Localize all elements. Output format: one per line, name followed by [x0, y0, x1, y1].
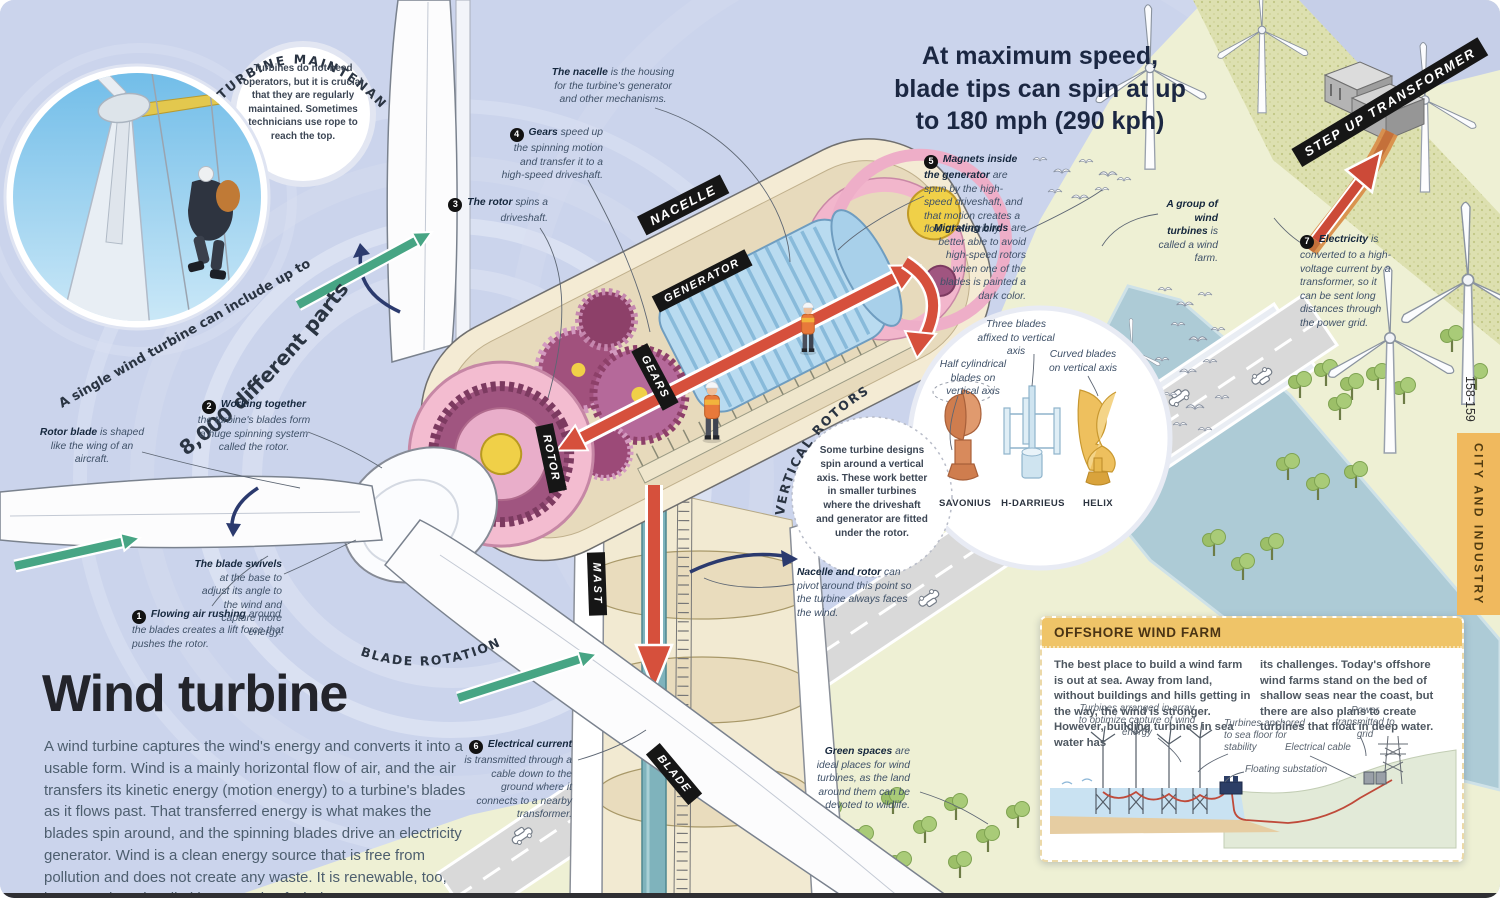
callout-2-working-together: 2 Working together the turbine's blades … — [196, 398, 312, 455]
page-title: Wind turbine — [42, 664, 347, 724]
annotation-blade-swivels: The blade swivels at the base to adjust … — [190, 558, 282, 639]
offshore-label-cable: Electrical cable — [1285, 742, 1365, 754]
callout-5-badge: 5 — [924, 155, 938, 169]
name-savonius: SAVONIUS — [930, 498, 1000, 509]
callout-7-electricity: 7 Electricity is converted to a high-vol… — [1300, 233, 1394, 330]
vertical-rotors-bubble-text: Some turbine designs spin around a verti… — [814, 444, 930, 541]
annotation-rotor-blade: Rotor blade is shaped like the wing of a… — [36, 426, 148, 467]
callout-6-badge: 6 — [469, 740, 483, 754]
callout-1-badge: 1 — [132, 610, 146, 624]
callout-3-badge: 3 — [448, 198, 462, 212]
callout-7-badge: 7 — [1300, 235, 1314, 249]
label-mast: MAST — [587, 552, 607, 616]
annotation-pivot: Nacelle and rotor can pivot around this … — [797, 566, 915, 620]
offshore-label-power: Power transmitted to grid — [1333, 705, 1397, 742]
offshore-label-substation: Floating substation — [1245, 764, 1335, 776]
maintenance-bubble-text: Turbines do not need operators, but it i… — [243, 62, 363, 143]
caption-helix: Curved blades on vertical axis — [1044, 348, 1122, 375]
blade-up — [387, 0, 457, 362]
callout-6-electrical-current: 6 Electrical current is transmitted thro… — [460, 738, 572, 822]
annotation-wind-farm: A group of wind turbines is called a win… — [1156, 198, 1218, 266]
section-tab-city-and-industry: CITY AND INDUSTRY — [1457, 433, 1500, 615]
max-speed-stat: At maximum speed, blade tips can spin at… — [888, 40, 1192, 138]
annotation-green-spaces: Green spaces are ideal places for wind t… — [815, 745, 910, 813]
name-helix: HELIX — [1073, 498, 1123, 509]
caption-savonius: Half cylindrical blades on vertical axis — [936, 358, 1010, 399]
background-tower — [456, 0, 470, 358]
callout-3-rotor: 3 The rotor spins a driveshaft. — [448, 196, 548, 226]
callout-4-gears: 4 Gears speed up the spinning motion and… — [495, 126, 603, 183]
offshore-heading: OFFSHORE WIND FARM — [1042, 618, 1462, 648]
annotation-migrating-birds: Migrating birds are better able to avoid… — [930, 222, 1026, 303]
book-page-wind-turbine: TURBINE MAINTENANCE A single wind turbin… — [0, 0, 1500, 898]
offshore-wind-farm-panel: OFFSHORE WIND FARM The best place to bui… — [1040, 616, 1464, 862]
page-numbers: 158-159 — [1463, 376, 1477, 422]
offshore-label-arranged: Turbines arranged in array to optimize c… — [1077, 703, 1197, 740]
name-h-darrieus: H-DARRIEUS — [997, 498, 1069, 509]
callout-4-badge: 4 — [510, 128, 524, 142]
callout-2-badge: 2 — [202, 400, 216, 414]
annotation-nacelle-housing: The nacelle is the housing for the turbi… — [548, 66, 678, 107]
page-bottom-edge — [0, 893, 1500, 898]
intro-paragraph: A wind turbine captures the wind's energ… — [44, 736, 476, 898]
